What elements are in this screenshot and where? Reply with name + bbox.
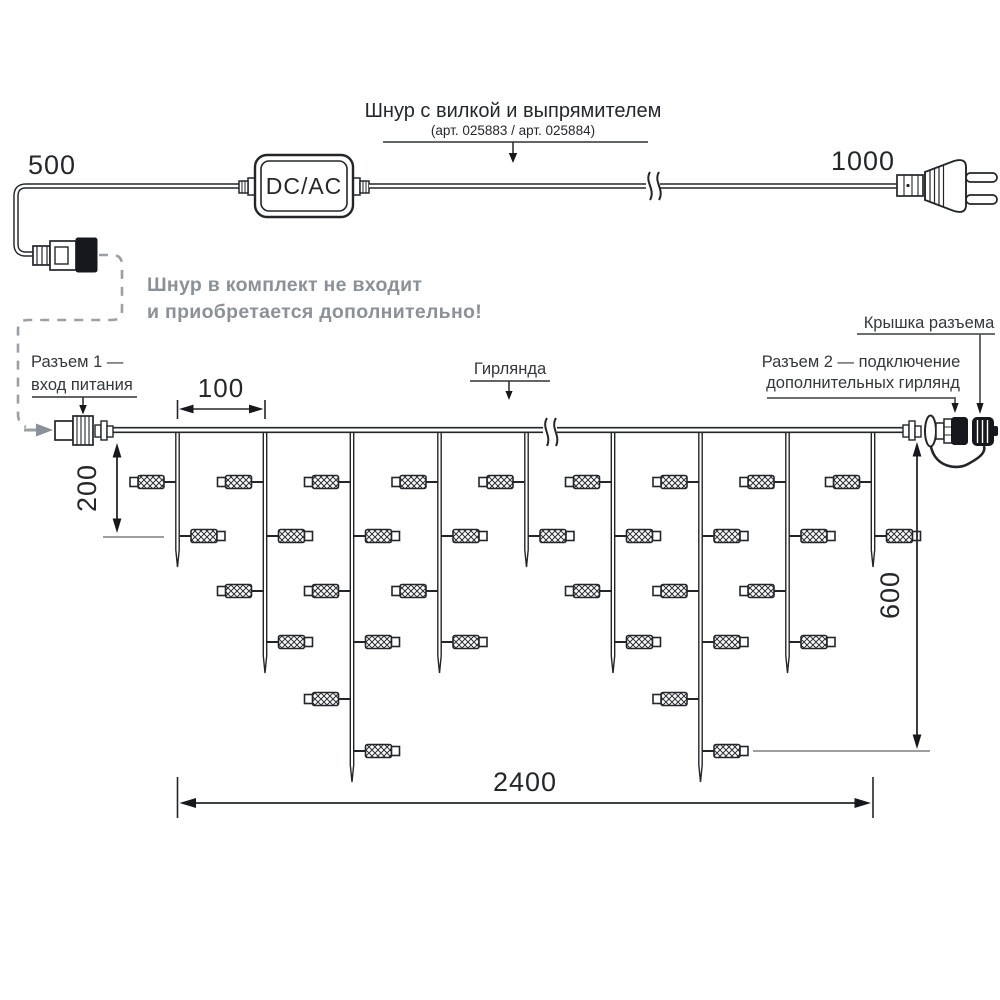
lamp-cap <box>740 638 748 647</box>
lamp-body <box>714 745 740 758</box>
diagram-canvas: 500 DC/AC 1000 <box>0 0 1000 1000</box>
garland-strand <box>305 433 400 782</box>
garland-connector-1 <box>55 416 113 445</box>
cap-tether-cable <box>931 446 984 467</box>
connector1-label-line2: вход питания <box>31 376 133 394</box>
lamp-body <box>574 476 600 489</box>
garland-strand <box>392 433 487 673</box>
lamp-cap <box>392 532 400 541</box>
lamp-body <box>627 530 653 543</box>
dc-ac-label: DC/AC <box>266 173 343 199</box>
strand-wire <box>871 433 874 567</box>
dimension-500: 500 <box>28 150 76 180</box>
connector2-label-line2: дополнительных гирлянд <box>766 374 960 392</box>
lamp-body <box>313 585 339 598</box>
garland-strand <box>740 433 835 673</box>
lamp-cap <box>130 478 138 487</box>
lamp-body <box>313 476 339 489</box>
lamp-cap <box>217 532 225 541</box>
power-cord-assembly: 500 DC/AC 1000 <box>16 100 997 272</box>
connector2-callout: Разъем 2 — подключение дополнительных ги… <box>762 353 961 413</box>
strand-wire <box>699 433 702 782</box>
lamp-cap <box>826 478 834 487</box>
dim-arrow-up-icon <box>913 442 922 457</box>
lamp-cap <box>392 478 400 487</box>
dimension-100-value: 100 <box>198 373 244 403</box>
lamp-cap <box>740 478 748 487</box>
connector2-arrow-down-icon <box>951 403 958 413</box>
lamp-cap <box>566 478 574 487</box>
garland-strands <box>130 433 921 782</box>
lamp-body <box>366 636 392 649</box>
lamp-cap <box>740 532 748 541</box>
dimension-2400: 2400 <box>178 767 874 818</box>
dim-arrow-left-icon <box>180 798 197 808</box>
lamp-cap <box>479 638 487 647</box>
strand-wire <box>786 433 789 673</box>
strand-wire <box>525 433 528 567</box>
lamp-cap <box>392 747 400 756</box>
lamp-cap <box>392 638 400 647</box>
garland-arrow-down-icon <box>505 391 512 400</box>
lamp-body <box>400 476 426 489</box>
connector1-label-line1: Разъем 1 — <box>31 353 124 371</box>
lamp-body <box>661 476 687 489</box>
strand-wire <box>176 433 179 567</box>
lamp-cap <box>827 532 835 541</box>
dim-arrow-up-icon <box>113 443 122 458</box>
power-plug <box>897 160 997 212</box>
lamp-body <box>661 693 687 706</box>
cord-subtitle: (арт. 025883 / арт. 025884) <box>431 123 595 138</box>
lamp-cap <box>653 587 661 596</box>
lamp-body <box>801 530 827 543</box>
lamp-body <box>540 530 566 543</box>
lamp-cap <box>740 587 748 596</box>
lamp-cap <box>218 478 226 487</box>
strand-wire <box>611 433 614 673</box>
lamp-cap <box>566 532 574 541</box>
dimension-100: 100 <box>178 373 266 419</box>
lamp-body <box>801 636 827 649</box>
dim-arrow-right-icon <box>249 405 264 414</box>
garland-strand <box>479 433 574 567</box>
garland-strand <box>218 433 313 673</box>
connector1-arrow-down-icon <box>79 405 87 415</box>
lamp-cap <box>305 478 313 487</box>
garland-strand <box>566 433 661 673</box>
strand-wire <box>438 433 441 673</box>
lamp-body <box>453 636 479 649</box>
lamp-cap <box>305 587 313 596</box>
cord-end-connector <box>33 238 97 272</box>
lamp-body <box>279 636 305 649</box>
strand-wire <box>263 433 266 673</box>
lamp-body <box>453 530 479 543</box>
lamp-body <box>627 636 653 649</box>
lamp-body <box>313 693 339 706</box>
cord-break-symbol <box>648 172 660 200</box>
lamp-body <box>714 530 740 543</box>
dimension-600-value: 600 <box>875 571 905 619</box>
note-line2: и приобретается дополнительно! <box>147 301 482 323</box>
cord-callout: Шнур с вилкой и выпрямителем (арт. 02588… <box>365 100 662 163</box>
lamp-cap <box>827 638 835 647</box>
lamp-body <box>191 530 217 543</box>
note-line1: Шнур в комплект не входит <box>147 274 422 296</box>
dim-arrow-left-icon <box>179 405 194 414</box>
garland-strand <box>826 433 921 567</box>
connector1-callout: Разъем 1 — вход питания <box>31 353 137 415</box>
dc-ac-converter: DC/AC <box>239 155 369 217</box>
dashed-connection-path <box>18 255 122 437</box>
lamp-body <box>226 585 252 598</box>
gray-arrow-right-icon <box>36 424 53 437</box>
dimension-200: 200 <box>72 443 164 537</box>
garland-label: Гирлянда <box>474 360 547 378</box>
garland-break-symbol <box>545 418 557 446</box>
lamp-cap <box>392 587 400 596</box>
cord-title: Шнур с вилкой и выпрямителем <box>365 100 662 122</box>
lamp-body <box>748 476 774 489</box>
cap-label: Крышка разъема <box>864 314 995 332</box>
connector2-label-line1: Разъем 2 — подключение <box>762 353 961 371</box>
lamp-cap <box>479 478 487 487</box>
dim-arrow-right-icon <box>855 798 872 808</box>
dim-arrow-down-icon <box>113 519 122 534</box>
lamp-body <box>661 585 687 598</box>
lamp-cap <box>479 532 487 541</box>
lamp-body <box>400 585 426 598</box>
cap-arrow-down-icon <box>976 403 983 414</box>
lamp-body <box>279 530 305 543</box>
lamp-cap <box>653 638 661 647</box>
lamp-body <box>487 476 513 489</box>
lamp-cap <box>653 532 661 541</box>
lamp-cap <box>653 695 661 704</box>
garland-callout: Гирлянда <box>470 360 550 400</box>
lamp-body <box>138 476 164 489</box>
lamp-body <box>748 585 774 598</box>
dimension-1000: 1000 <box>831 146 895 176</box>
lamp-cap <box>218 587 226 596</box>
lamp-cap <box>740 747 748 756</box>
garland-strand <box>653 433 748 782</box>
lamp-cap <box>305 638 313 647</box>
lamp-cap <box>305 532 313 541</box>
lamp-body <box>226 476 252 489</box>
connector-cap <box>972 417 998 446</box>
garland-strand <box>130 433 225 567</box>
dimension-2400-value: 2400 <box>493 767 557 797</box>
dimension-200-value: 200 <box>72 464 102 512</box>
note-text: Шнур в комплект не входит и приобретаетс… <box>147 274 482 323</box>
strand-wire <box>350 433 353 782</box>
lamp-cap <box>653 478 661 487</box>
lamp-body <box>714 636 740 649</box>
garland-technical-diagram: 500 DC/AC 1000 <box>0 0 1000 1000</box>
lamp-cap <box>305 695 313 704</box>
lamp-body <box>574 585 600 598</box>
lamp-body <box>834 476 860 489</box>
lamp-body <box>366 530 392 543</box>
callout-arrow-down-icon <box>509 153 517 163</box>
lamp-body <box>366 745 392 758</box>
lamp-body <box>887 530 913 543</box>
lamp-cap <box>566 587 574 596</box>
dim-arrow-down-icon <box>913 735 922 750</box>
